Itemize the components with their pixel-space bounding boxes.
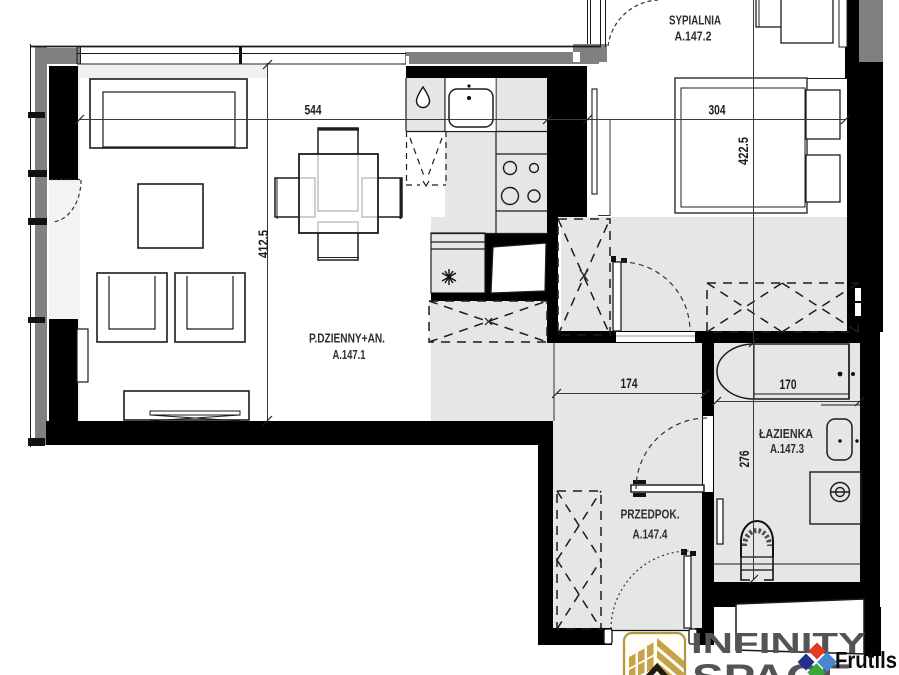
svg-text:A.147.3: A.147.3 — [770, 441, 804, 456]
svg-text:Frutils: Frutils — [835, 647, 897, 673]
svg-text:544: 544 — [305, 102, 322, 118]
svg-text:422.5: 422.5 — [735, 137, 751, 165]
svg-text:276: 276 — [736, 450, 752, 467]
svg-text:170: 170 — [780, 376, 797, 392]
svg-text:A.147.2: A.147.2 — [675, 29, 712, 44]
svg-text:412.5: 412.5 — [255, 230, 271, 258]
svg-text:PRZEDPOK.: PRZEDPOK. — [621, 507, 680, 522]
svg-text:304: 304 — [709, 102, 726, 118]
svg-text:P.DZIENNY+AN.: P.DZIENNY+AN. — [309, 331, 385, 346]
svg-text:SYPIALNIA: SYPIALNIA — [669, 13, 721, 28]
svg-text:ŁAZIENKA: ŁAZIENKA — [759, 426, 814, 441]
svg-text:174: 174 — [621, 375, 638, 391]
svg-text:A.147.1: A.147.1 — [333, 347, 366, 362]
svg-text:A.147.4: A.147.4 — [633, 527, 669, 542]
